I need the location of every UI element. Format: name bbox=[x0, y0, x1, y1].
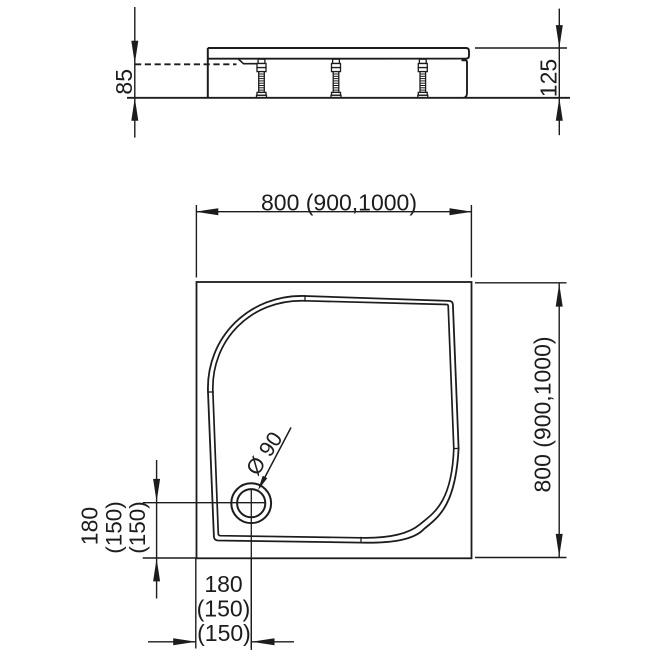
svg-text:125: 125 bbox=[536, 59, 562, 97]
svg-text:(150): (150) bbox=[197, 620, 251, 646]
svg-text:180: 180 bbox=[77, 507, 103, 545]
svg-text:800 (900,1000): 800 (900,1000) bbox=[530, 336, 556, 492]
svg-text:(150): (150) bbox=[125, 501, 150, 554]
svg-text:85: 85 bbox=[111, 69, 137, 95]
svg-text:800 (900,1000): 800 (900,1000) bbox=[261, 189, 417, 215]
svg-text:180: 180 bbox=[204, 571, 242, 597]
svg-text:(150): (150) bbox=[102, 501, 127, 554]
svg-text:(150): (150) bbox=[197, 596, 251, 622]
